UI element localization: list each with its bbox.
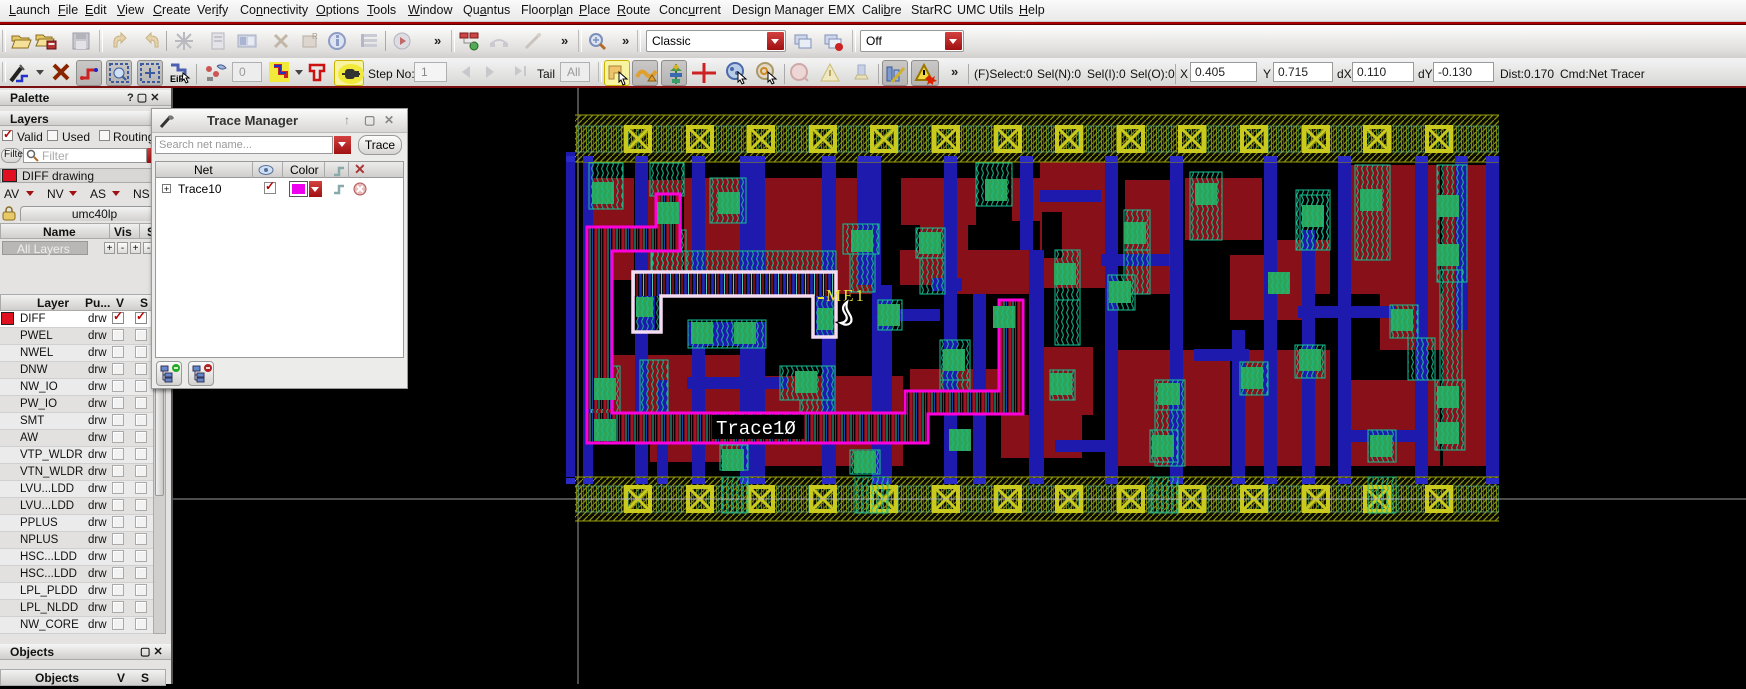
svg-text:Trace1Ø: Trace1Ø: [716, 418, 796, 440]
svg-text:R: R: [312, 32, 318, 41]
